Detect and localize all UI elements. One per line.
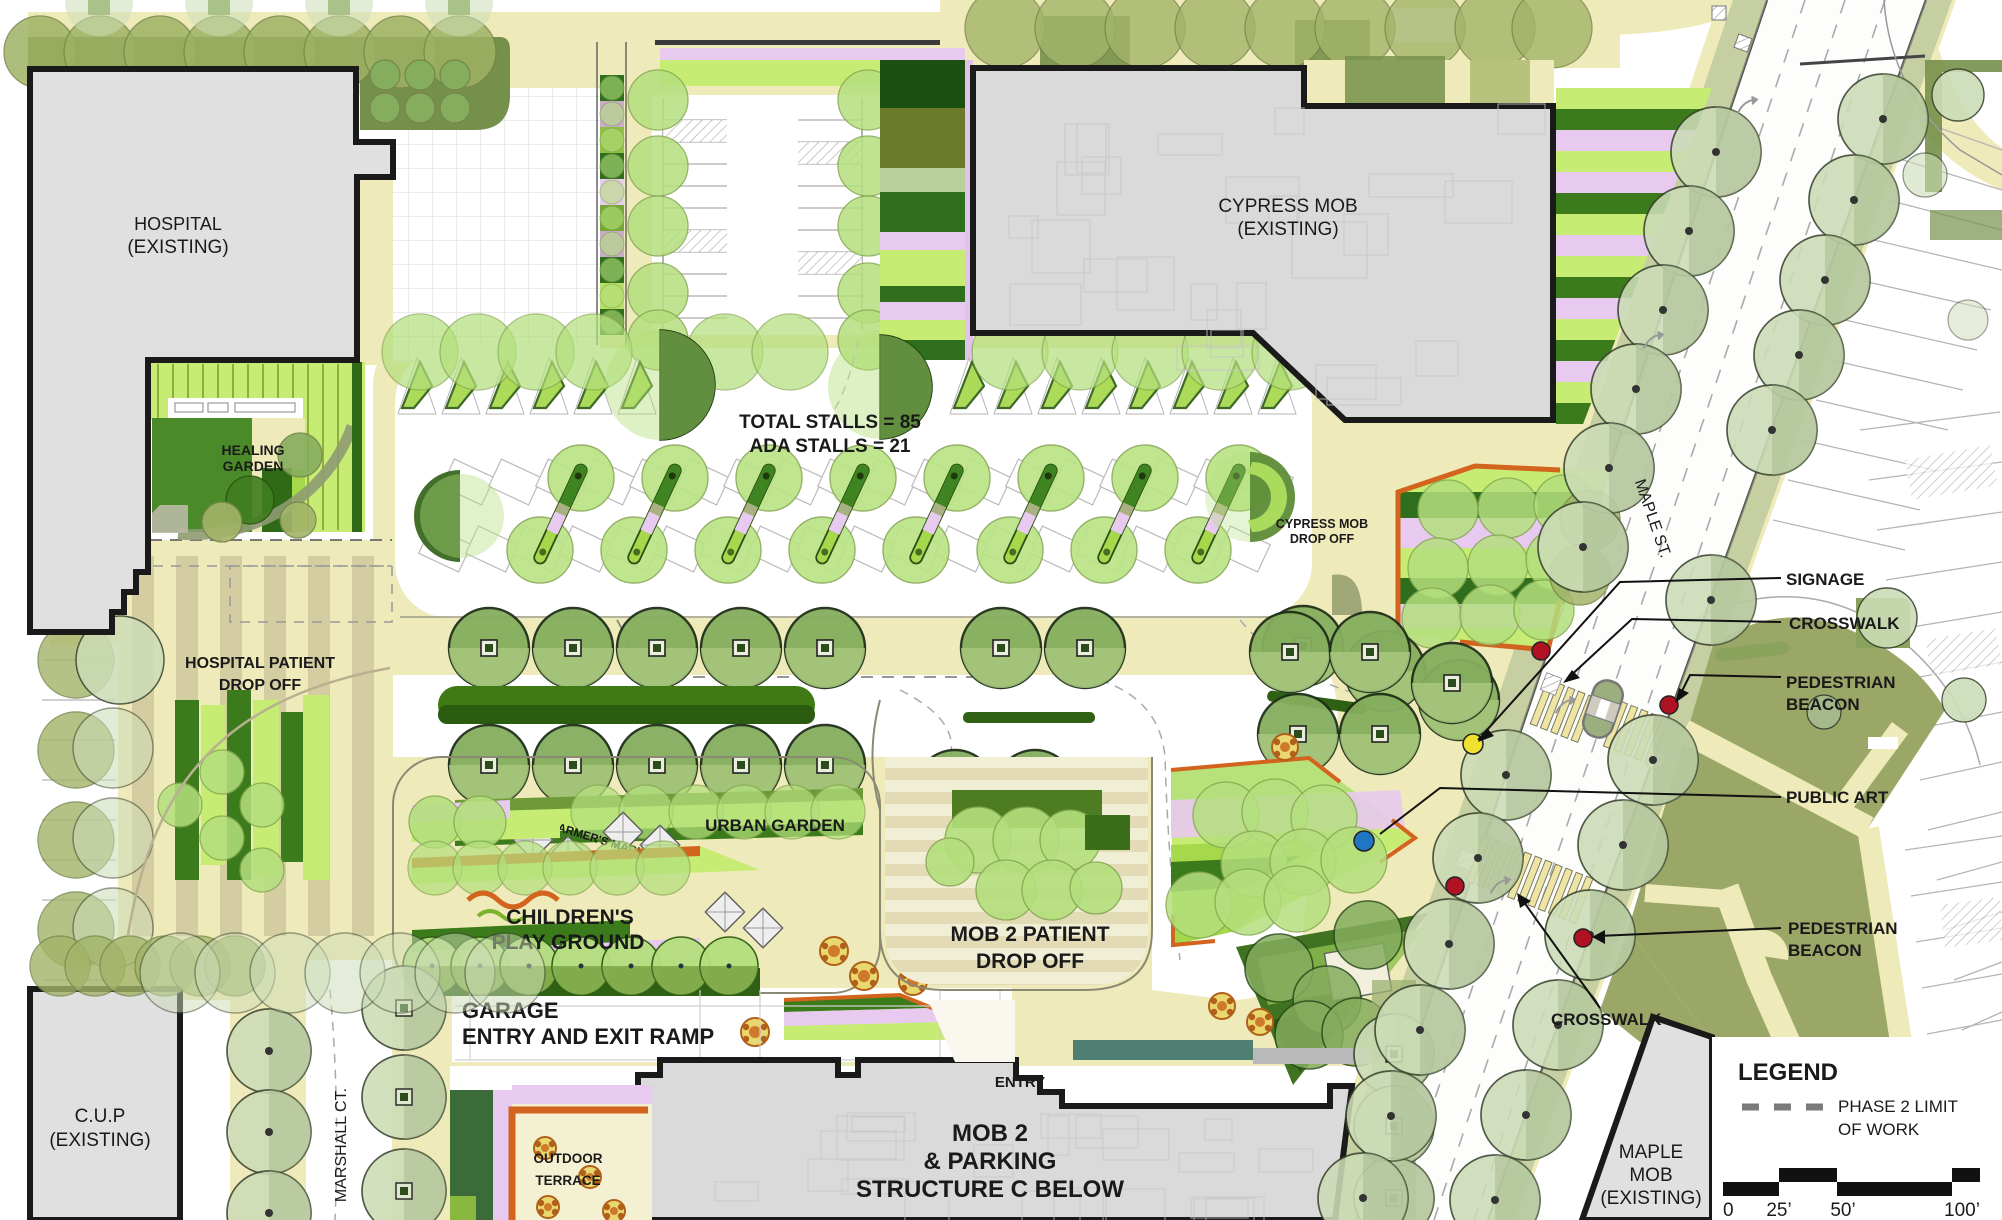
svg-text:URBAN GARDEN: URBAN GARDEN: [705, 816, 845, 835]
svg-text:0: 0: [1723, 1200, 1734, 1220]
svg-text:GARDEN: GARDEN: [223, 458, 284, 474]
svg-text:TOTAL STALLS = 85: TOTAL STALLS = 85: [739, 412, 921, 433]
svg-text:ADA STALLS = 21: ADA STALLS = 21: [750, 436, 911, 457]
svg-text:50’: 50’: [1830, 1200, 1855, 1220]
svg-text:DROP OFF: DROP OFF: [1290, 532, 1355, 546]
svg-text:MOB 2 PATIENT: MOB 2 PATIENT: [950, 923, 1109, 946]
svg-text:ENTRY AND EXIT RAMP: ENTRY AND EXIT RAMP: [462, 1024, 714, 1049]
svg-text:MOB: MOB: [1629, 1165, 1672, 1186]
svg-text:(EXISTING): (EXISTING): [1237, 219, 1338, 240]
svg-text:PHASE 2 LIMIT: PHASE 2 LIMIT: [1838, 1097, 1958, 1116]
svg-text:OUTDOOR: OUTDOOR: [534, 1151, 603, 1166]
svg-text:HOSPITAL PATIENT: HOSPITAL PATIENT: [185, 655, 335, 672]
svg-text:(EXISTING): (EXISTING): [127, 237, 228, 258]
svg-text:PEDESTRIAN: PEDESTRIAN: [1786, 673, 1896, 692]
svg-text:SIGNAGE: SIGNAGE: [1786, 570, 1864, 589]
svg-text:CYPRESS MOB: CYPRESS MOB: [1276, 517, 1368, 531]
svg-text:LEGEND: LEGEND: [1738, 1059, 1838, 1086]
svg-text:& PARKING: & PARKING: [924, 1148, 1057, 1175]
svg-text:MARSHALL CT.: MARSHALL CT.: [333, 1088, 350, 1202]
svg-text:HOSPITAL: HOSPITAL: [134, 214, 222, 234]
svg-text:C.U.P: C.U.P: [75, 1106, 126, 1127]
svg-text:(EXISTING): (EXISTING): [49, 1130, 150, 1151]
svg-text:MAPLE: MAPLE: [1619, 1142, 1683, 1163]
svg-text:CYPRESS MOB: CYPRESS MOB: [1218, 196, 1357, 217]
svg-text:DROP OFF: DROP OFF: [219, 677, 302, 694]
svg-text:CROSSWALK: CROSSWALK: [1551, 1010, 1662, 1029]
svg-text:BEACON: BEACON: [1786, 695, 1860, 714]
svg-text:CHILDREN'S: CHILDREN'S: [506, 906, 634, 929]
svg-text:MOB 2: MOB 2: [952, 1120, 1028, 1147]
svg-text:OF WORK: OF WORK: [1838, 1120, 1920, 1139]
svg-text:DROP OFF: DROP OFF: [976, 950, 1084, 973]
svg-text:100’: 100’: [1944, 1200, 1980, 1220]
svg-text:25’: 25’: [1766, 1200, 1791, 1220]
svg-text:BEACON: BEACON: [1788, 941, 1862, 960]
svg-text:TERRACE: TERRACE: [535, 1173, 600, 1188]
svg-text:HEALING: HEALING: [222, 442, 285, 458]
svg-text:PEDESTRIAN: PEDESTRIAN: [1788, 919, 1898, 938]
svg-text:ENTRY: ENTRY: [995, 1074, 1045, 1091]
svg-text:STRUCTURE C BELOW: STRUCTURE C BELOW: [856, 1176, 1124, 1203]
svg-text:CROSSWALK: CROSSWALK: [1789, 614, 1900, 633]
svg-text:(EXISTING): (EXISTING): [1600, 1188, 1701, 1209]
svg-text:PUBLIC ART: PUBLIC ART: [1786, 788, 1889, 807]
